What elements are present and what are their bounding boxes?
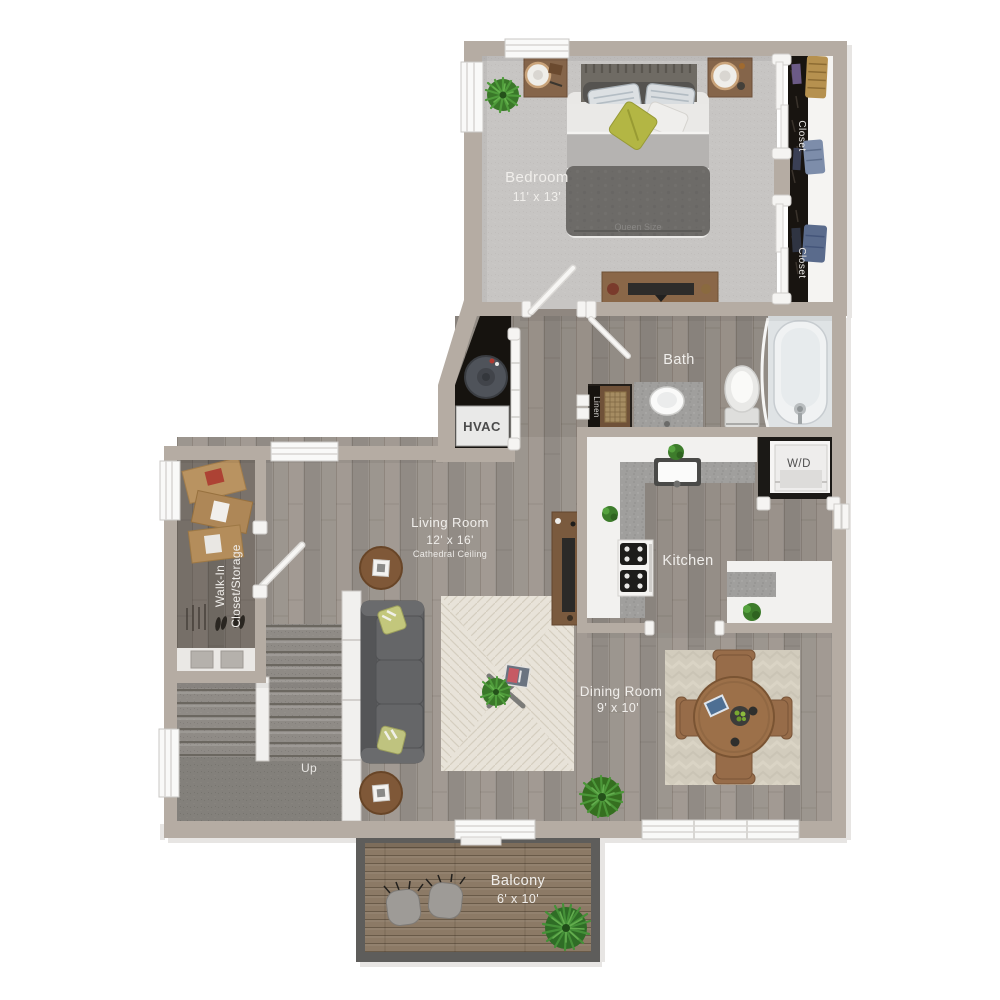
svg-text:Closet/Storage: Closet/Storage xyxy=(229,544,243,628)
svg-text:Queen Size: Queen Size xyxy=(614,222,661,232)
svg-text:11' x 13': 11' x 13' xyxy=(513,190,561,204)
svg-text:Balcony: Balcony xyxy=(491,873,546,889)
svg-text:Up: Up xyxy=(301,761,317,775)
svg-text:Living Room: Living Room xyxy=(411,515,489,530)
svg-text:Dining Room: Dining Room xyxy=(580,684,662,699)
svg-text:Closet: Closet xyxy=(796,247,807,278)
svg-text:6' x 10': 6' x 10' xyxy=(497,892,539,906)
svg-text:Kitchen: Kitchen xyxy=(662,553,713,569)
svg-text:Walk-In: Walk-In xyxy=(213,565,227,607)
svg-text:Linen: Linen xyxy=(592,396,601,418)
svg-text:Closet: Closet xyxy=(796,120,807,151)
svg-text:Cathedral Ceiling: Cathedral Ceiling xyxy=(413,549,487,559)
svg-text:Bath: Bath xyxy=(663,352,694,368)
svg-text:HVAC: HVAC xyxy=(463,419,501,434)
svg-text:12' x 16': 12' x 16' xyxy=(426,533,474,547)
svg-text:9' x 10': 9' x 10' xyxy=(597,701,639,715)
svg-text:W/D: W/D xyxy=(787,458,811,470)
svg-text:Bedroom: Bedroom xyxy=(505,169,569,186)
